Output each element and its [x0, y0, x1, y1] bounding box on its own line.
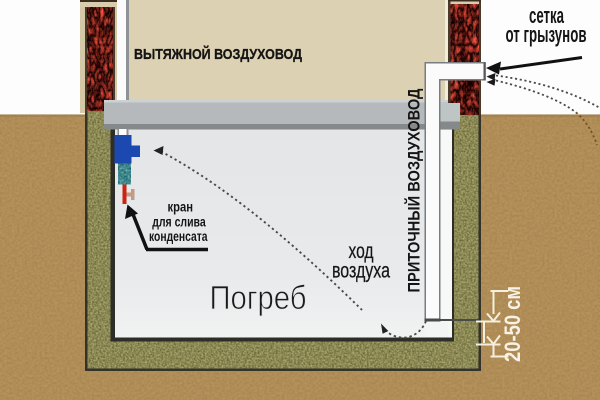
- svg-text:от грызунов: от грызунов: [506, 22, 587, 47]
- svg-text:кран: кран: [168, 199, 194, 215]
- svg-text:воздуха: воздуха: [332, 260, 390, 283]
- svg-text:ВЫТЯЖНОЙ ВОЗДУХОВОД: ВЫТЯЖНОЙ ВОЗДУХОВОД: [134, 45, 302, 63]
- svg-text:Погреб: Погреб: [210, 279, 307, 316]
- svg-text:ПРИТОЧНЫЙ ВОЗДУХОВОД: ПРИТОЧНЫЙ ВОЗДУХОВОД: [404, 88, 423, 292]
- svg-text:20-50 см: 20-50 см: [500, 286, 525, 362]
- svg-text:конденсата: конденсата: [149, 228, 208, 244]
